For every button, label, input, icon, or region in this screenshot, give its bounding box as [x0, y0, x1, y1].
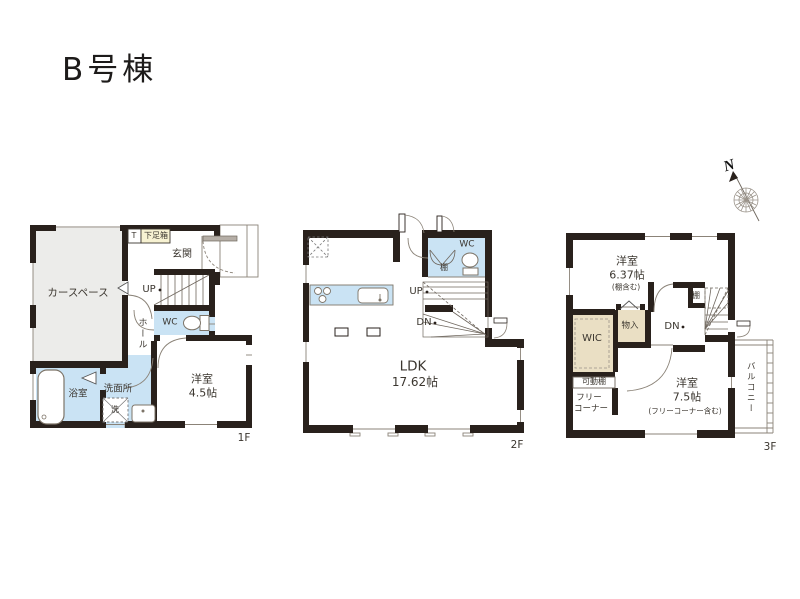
kitchen-sink-icon: [358, 288, 388, 303]
floorplan-1f: カースペース T 下足箱 玄関 UP ホール WC 洋室 4.5帖 浴室 洗面所…: [30, 222, 262, 448]
label-movable-shelf: 可動棚: [582, 378, 606, 386]
label-balcony: バルコニー: [746, 362, 755, 415]
toilet-2f-icon: [462, 253, 478, 275]
label-wic: WIC: [582, 334, 602, 344]
label-room2-3f-size: 7.5帖: [673, 392, 702, 403]
label-up-1f: UP: [142, 285, 155, 295]
label-room2-3f: 洋室: [676, 378, 698, 389]
compass: N: [700, 156, 784, 232]
label-ldk-size: 17.62帖: [392, 376, 438, 388]
floor-tag-1f: 1F: [238, 433, 251, 444]
label-closet: 物入: [621, 322, 638, 331]
entrance-door-arc: [203, 241, 235, 273]
label-bath: 浴室: [68, 389, 87, 399]
label-room-1f: 洋室: [191, 374, 213, 385]
label-free-corner-2: コーナー: [574, 405, 608, 414]
label-shelf-3f: 棚: [692, 292, 700, 300]
label-room2-3f-note: (フリーコーナー含む): [648, 407, 721, 415]
label-room1-3f-size: 6.37帖: [609, 270, 645, 281]
label-entrance: 玄関: [172, 250, 192, 260]
bathtub-icon: [38, 370, 64, 424]
label-room-1f-size: 4.5帖: [189, 388, 218, 399]
label-room1-3f-note: (棚含む): [612, 283, 640, 291]
floorplan-2f-graphic: [303, 210, 535, 455]
label-dn-3f: DN: [664, 322, 679, 332]
label-washer: 洗: [111, 406, 119, 414]
label-car-space: カースペース: [47, 288, 108, 299]
label-ldk: LDK: [400, 360, 427, 374]
landing-door-icon: [494, 318, 507, 338]
chair-icon: [335, 328, 348, 336]
label-dn-2f: DN: [416, 318, 431, 328]
label-wc-2f: WC: [459, 241, 474, 250]
floorplan-2f: WC 棚 UP DN LDK 17.62帖 2F: [303, 210, 535, 455]
label-hall: ホール: [137, 318, 146, 351]
chair-icon: [367, 328, 380, 336]
label-free-corner-1: フリー: [576, 394, 602, 403]
label-shelf-2f: 棚: [440, 264, 448, 272]
floor-tag-2f: 2F: [511, 440, 524, 451]
label-room1-3f: 洋室: [616, 256, 638, 267]
label-shoe-box: 下足箱: [144, 232, 168, 240]
floorplan-3f: 洋室 6.37帖 (棚含む) 棚 DN 物入 WIC 可動棚 フリー コーナー …: [563, 225, 800, 460]
entrance-door-leaf: [203, 236, 237, 241]
fridge-icon: [308, 237, 328, 257]
sink-icon: [132, 405, 155, 422]
label-wc-1f: WC: [162, 319, 177, 328]
closet-door-mark-icon: [620, 301, 638, 309]
compass-rose-icon: [700, 156, 784, 232]
floor-tag-3f: 3F: [764, 442, 777, 453]
label-up-2f: UP: [409, 287, 422, 297]
toilet-icon: [184, 316, 210, 331]
stairs-up-icon: [154, 275, 209, 305]
label-shoe-t: T: [132, 232, 137, 240]
label-washroom: 洗面所: [104, 384, 133, 394]
landing-door-3f-icon: [737, 321, 750, 337]
stairs-3f-icon: [705, 288, 728, 335]
floorplan-sheet: { "title": "B号棟", "compass": { "north": …: [0, 0, 800, 599]
page-title: B号棟: [62, 44, 157, 89]
